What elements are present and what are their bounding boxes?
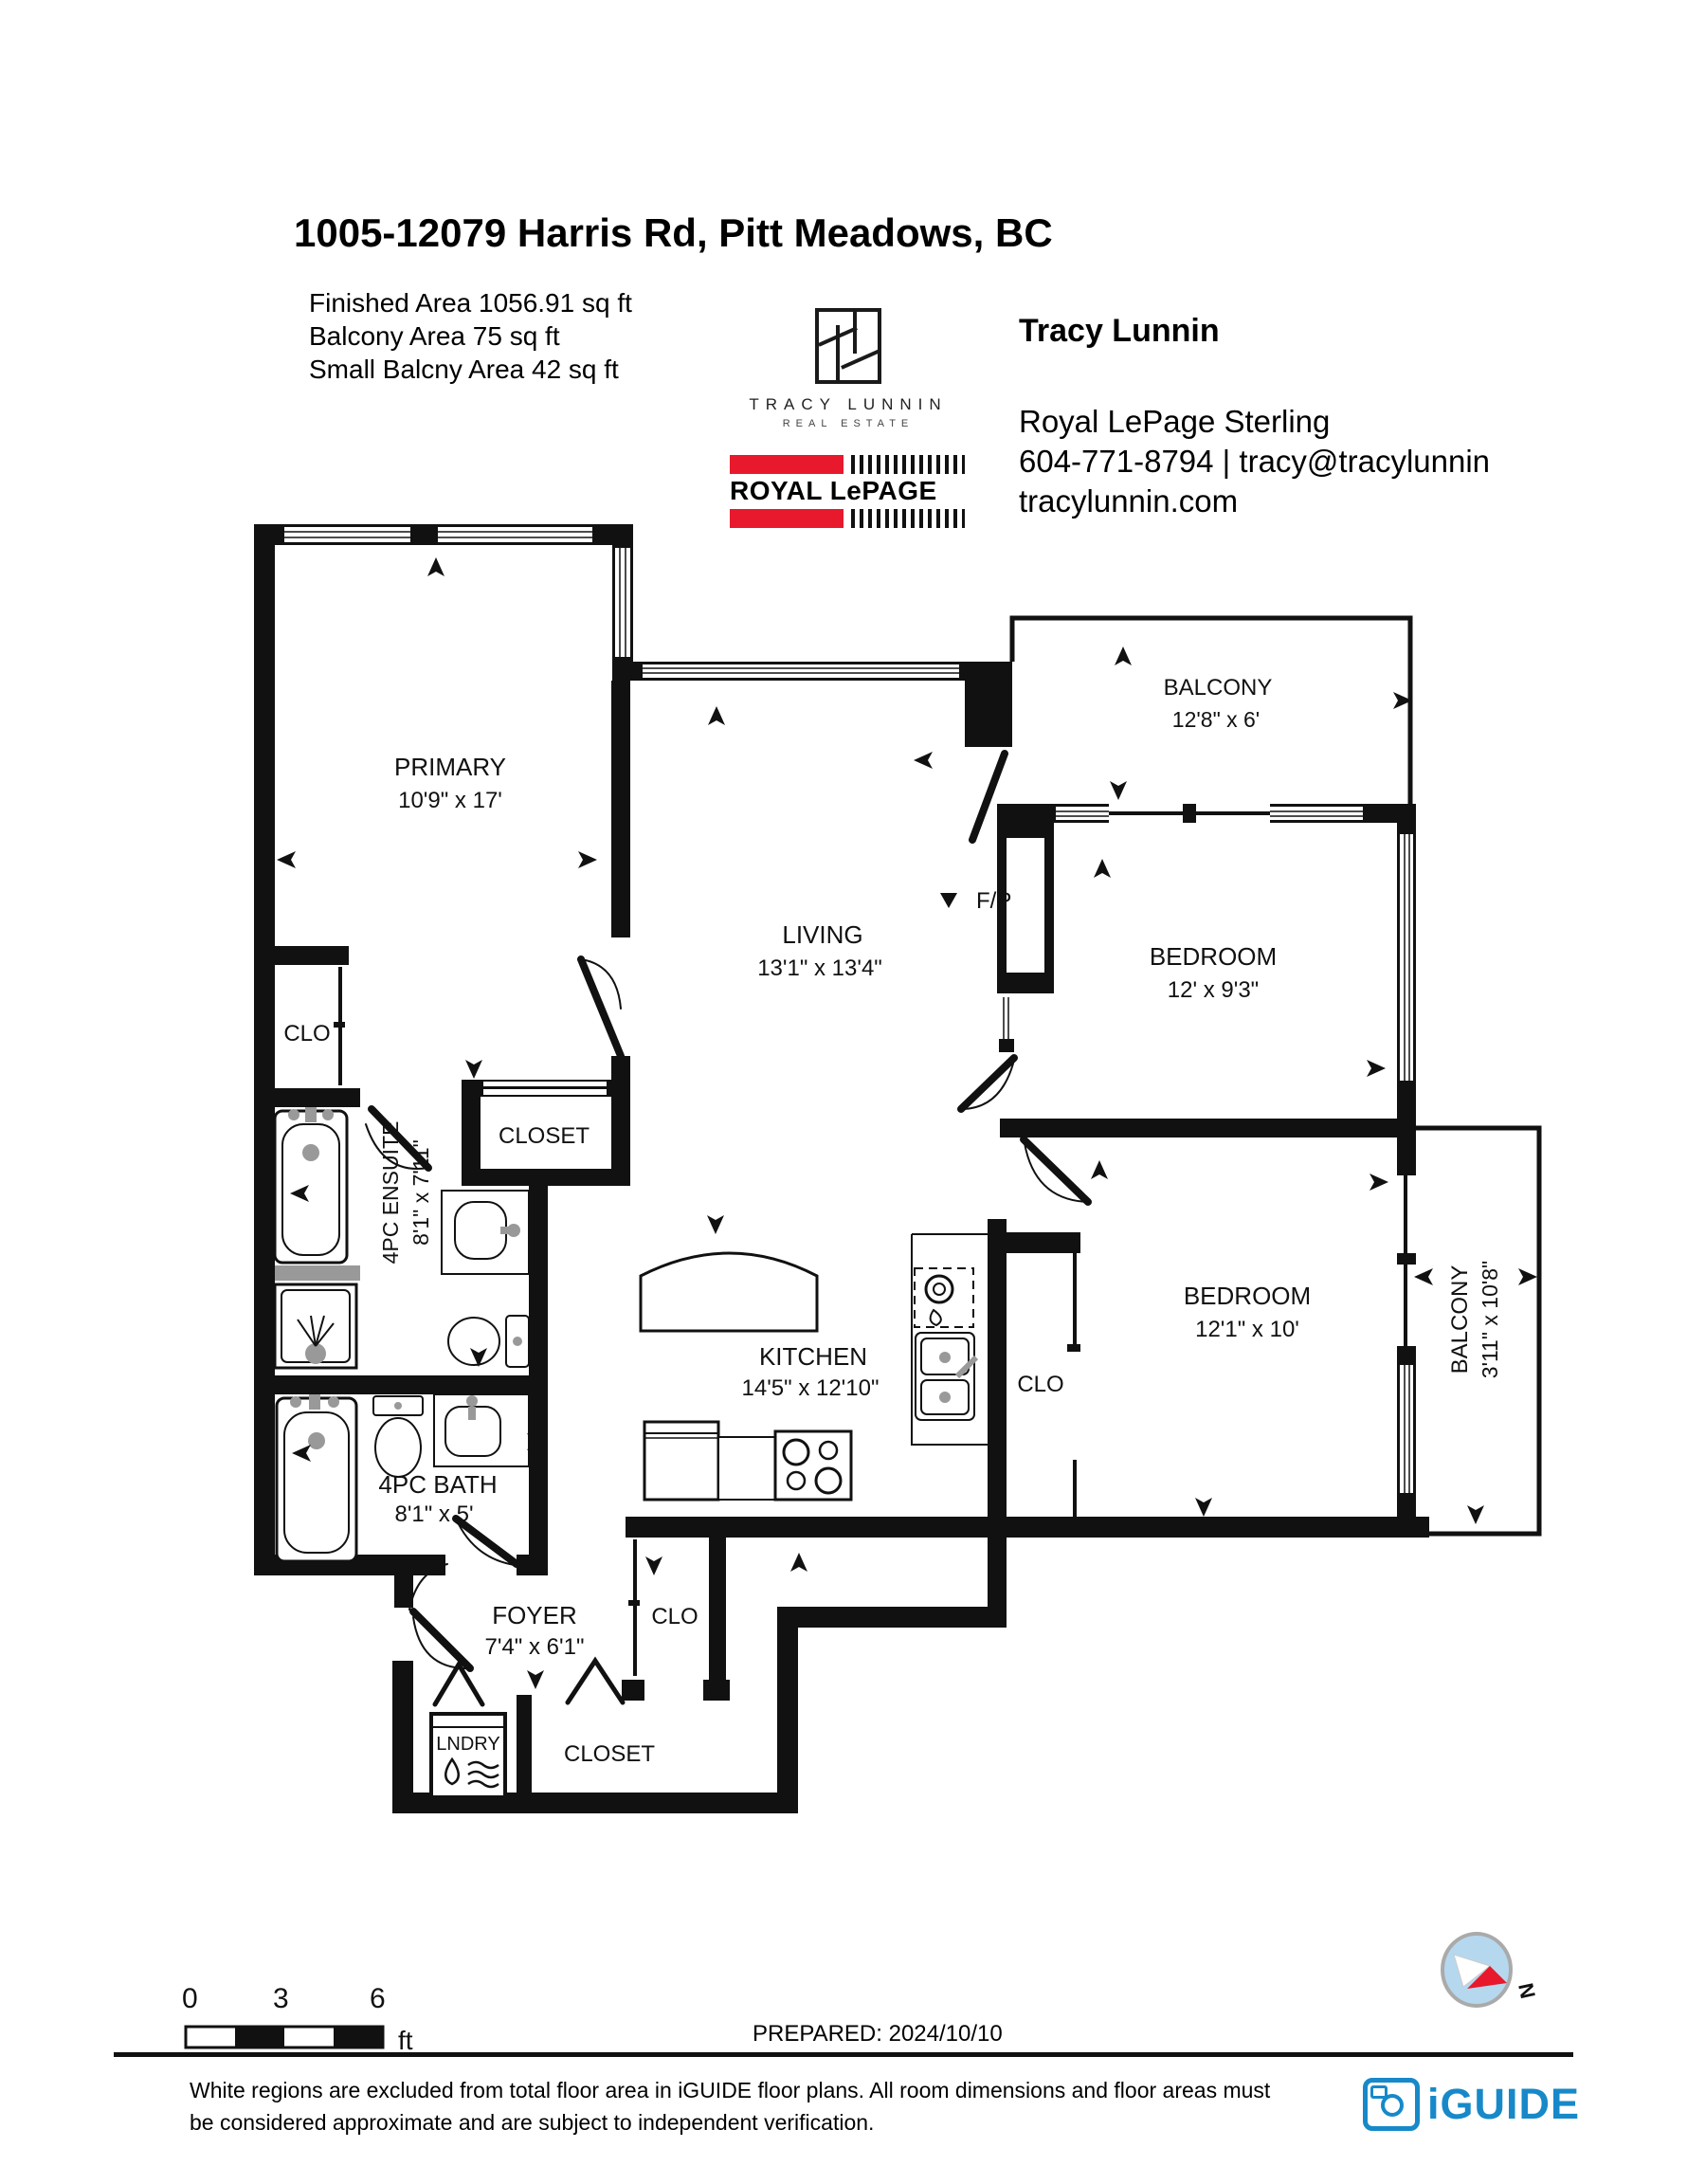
- sink-icon: [455, 1202, 506, 1259]
- floor-plan: LNDRY: [0, 0, 1687, 2184]
- room-label-foyer: FOYER: [492, 1601, 577, 1629]
- stove-icon: [775, 1431, 851, 1500]
- toilet-icon: [448, 1318, 499, 1365]
- iguide-logo: iGUIDE: [1363, 2078, 1580, 2131]
- scale-tick-6: 6: [370, 1983, 386, 2014]
- room-dims-balcony-top: 12'8" x 6': [1172, 707, 1260, 732]
- room-label-clo-bedroom2: CLO: [1017, 1372, 1063, 1397]
- prepared-date: PREPARED: 2024/10/10: [753, 2021, 1003, 2047]
- footer-divider: [114, 2052, 1573, 2057]
- room-dims-kitchen: 14'5" x 12'10": [742, 1375, 880, 1401]
- counter-sill: [275, 1265, 360, 1281]
- counter: [718, 1437, 775, 1500]
- room-label-clo-primary: CLO: [283, 1021, 330, 1046]
- room-dims-balcony-right: 3'11" x 10'8": [1478, 1261, 1502, 1378]
- room-label-clo-foyer: CLO: [651, 1604, 698, 1629]
- floorplan-page: 1005-12079 Harris Rd, Pitt Meadows, BC F…: [0, 0, 1687, 2184]
- scale-tick-0: 0: [182, 1983, 198, 2014]
- scale-unit: ft: [398, 2026, 413, 2055]
- room-label-living: LIVING: [782, 920, 862, 949]
- balcony-outlines: [1012, 618, 1539, 1534]
- compass-north-label: N: [1514, 1981, 1540, 2001]
- scale-bar: 0 3 6 ft: [182, 1983, 413, 2055]
- island-counter: [641, 1253, 817, 1331]
- room-label-kitchen: KITCHEN: [759, 1342, 867, 1371]
- room-dims-bedroom2: 12'1" x 10': [1195, 1317, 1299, 1342]
- room-dims-bedroom1: 12' x 9'3": [1168, 977, 1259, 1003]
- laundry-fixture: LNDRY: [431, 1714, 505, 1797]
- room-dims-living: 13'1" x 13'4": [757, 955, 882, 981]
- compass-icon: N: [1442, 1934, 1540, 2006]
- room-dims-ensuite: 8'1" x 7'11": [408, 1139, 433, 1246]
- disclaimer-line2: be considered approximate and are subjec…: [190, 2110, 874, 2136]
- room-label-ensuite: 4PC ENSUITE: [378, 1121, 403, 1265]
- room-label-bedroom1: BEDROOM: [1150, 942, 1277, 971]
- room-label-balcony-right: BALCONY: [1447, 1265, 1473, 1374]
- fireplace-label: F/P: [976, 888, 1011, 914]
- disclaimer-line1: White regions are excluded from total fl…: [190, 2078, 1270, 2103]
- laundry-label: LNDRY: [436, 1734, 499, 1755]
- iguide-logo-text: iGUIDE: [1427, 2080, 1580, 2129]
- room-dims-foyer: 7'4" x 6'1": [485, 1634, 585, 1660]
- scale-tick-3: 3: [273, 1983, 289, 2014]
- room-label-closet-foyer: CLOSET: [564, 1741, 655, 1767]
- room-dims-bath: 8'1" x 5': [394, 1501, 473, 1527]
- room-label-bedroom2: BEDROOM: [1184, 1282, 1311, 1310]
- room-label-bath: 4PC BATH: [378, 1470, 497, 1499]
- room-label-balcony-top: BALCONY: [1164, 675, 1273, 701]
- room-label-closet-primary: CLOSET: [499, 1123, 590, 1149]
- toilet-icon: [375, 1418, 421, 1477]
- iguide-camera-icon: [1363, 2078, 1420, 2131]
- room-dims-primary: 10'9" x 17': [398, 788, 502, 813]
- room-label-primary: PRIMARY: [394, 753, 506, 781]
